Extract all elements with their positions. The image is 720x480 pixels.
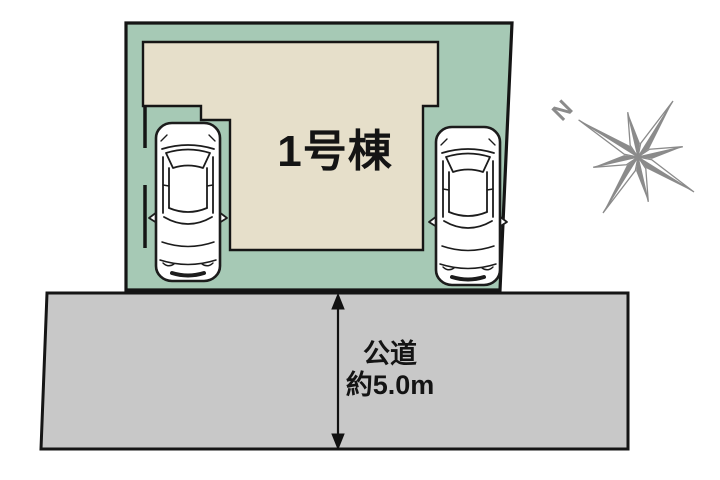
car-top-view-icon-left — [149, 123, 227, 281]
car-top-view-icon-right — [429, 127, 507, 285]
compass-rose-icon — [579, 101, 694, 213]
road-name: 公道 — [328, 339, 452, 370]
site-plan: 1号棟 公道 約5.0m N — [0, 0, 720, 480]
building-label: 1号棟 — [245, 120, 425, 174]
site-plan-drawing — [0, 0, 720, 480]
road-label: 公道 約5.0m — [328, 339, 452, 401]
road-width-value: 約5.0m — [328, 370, 452, 401]
